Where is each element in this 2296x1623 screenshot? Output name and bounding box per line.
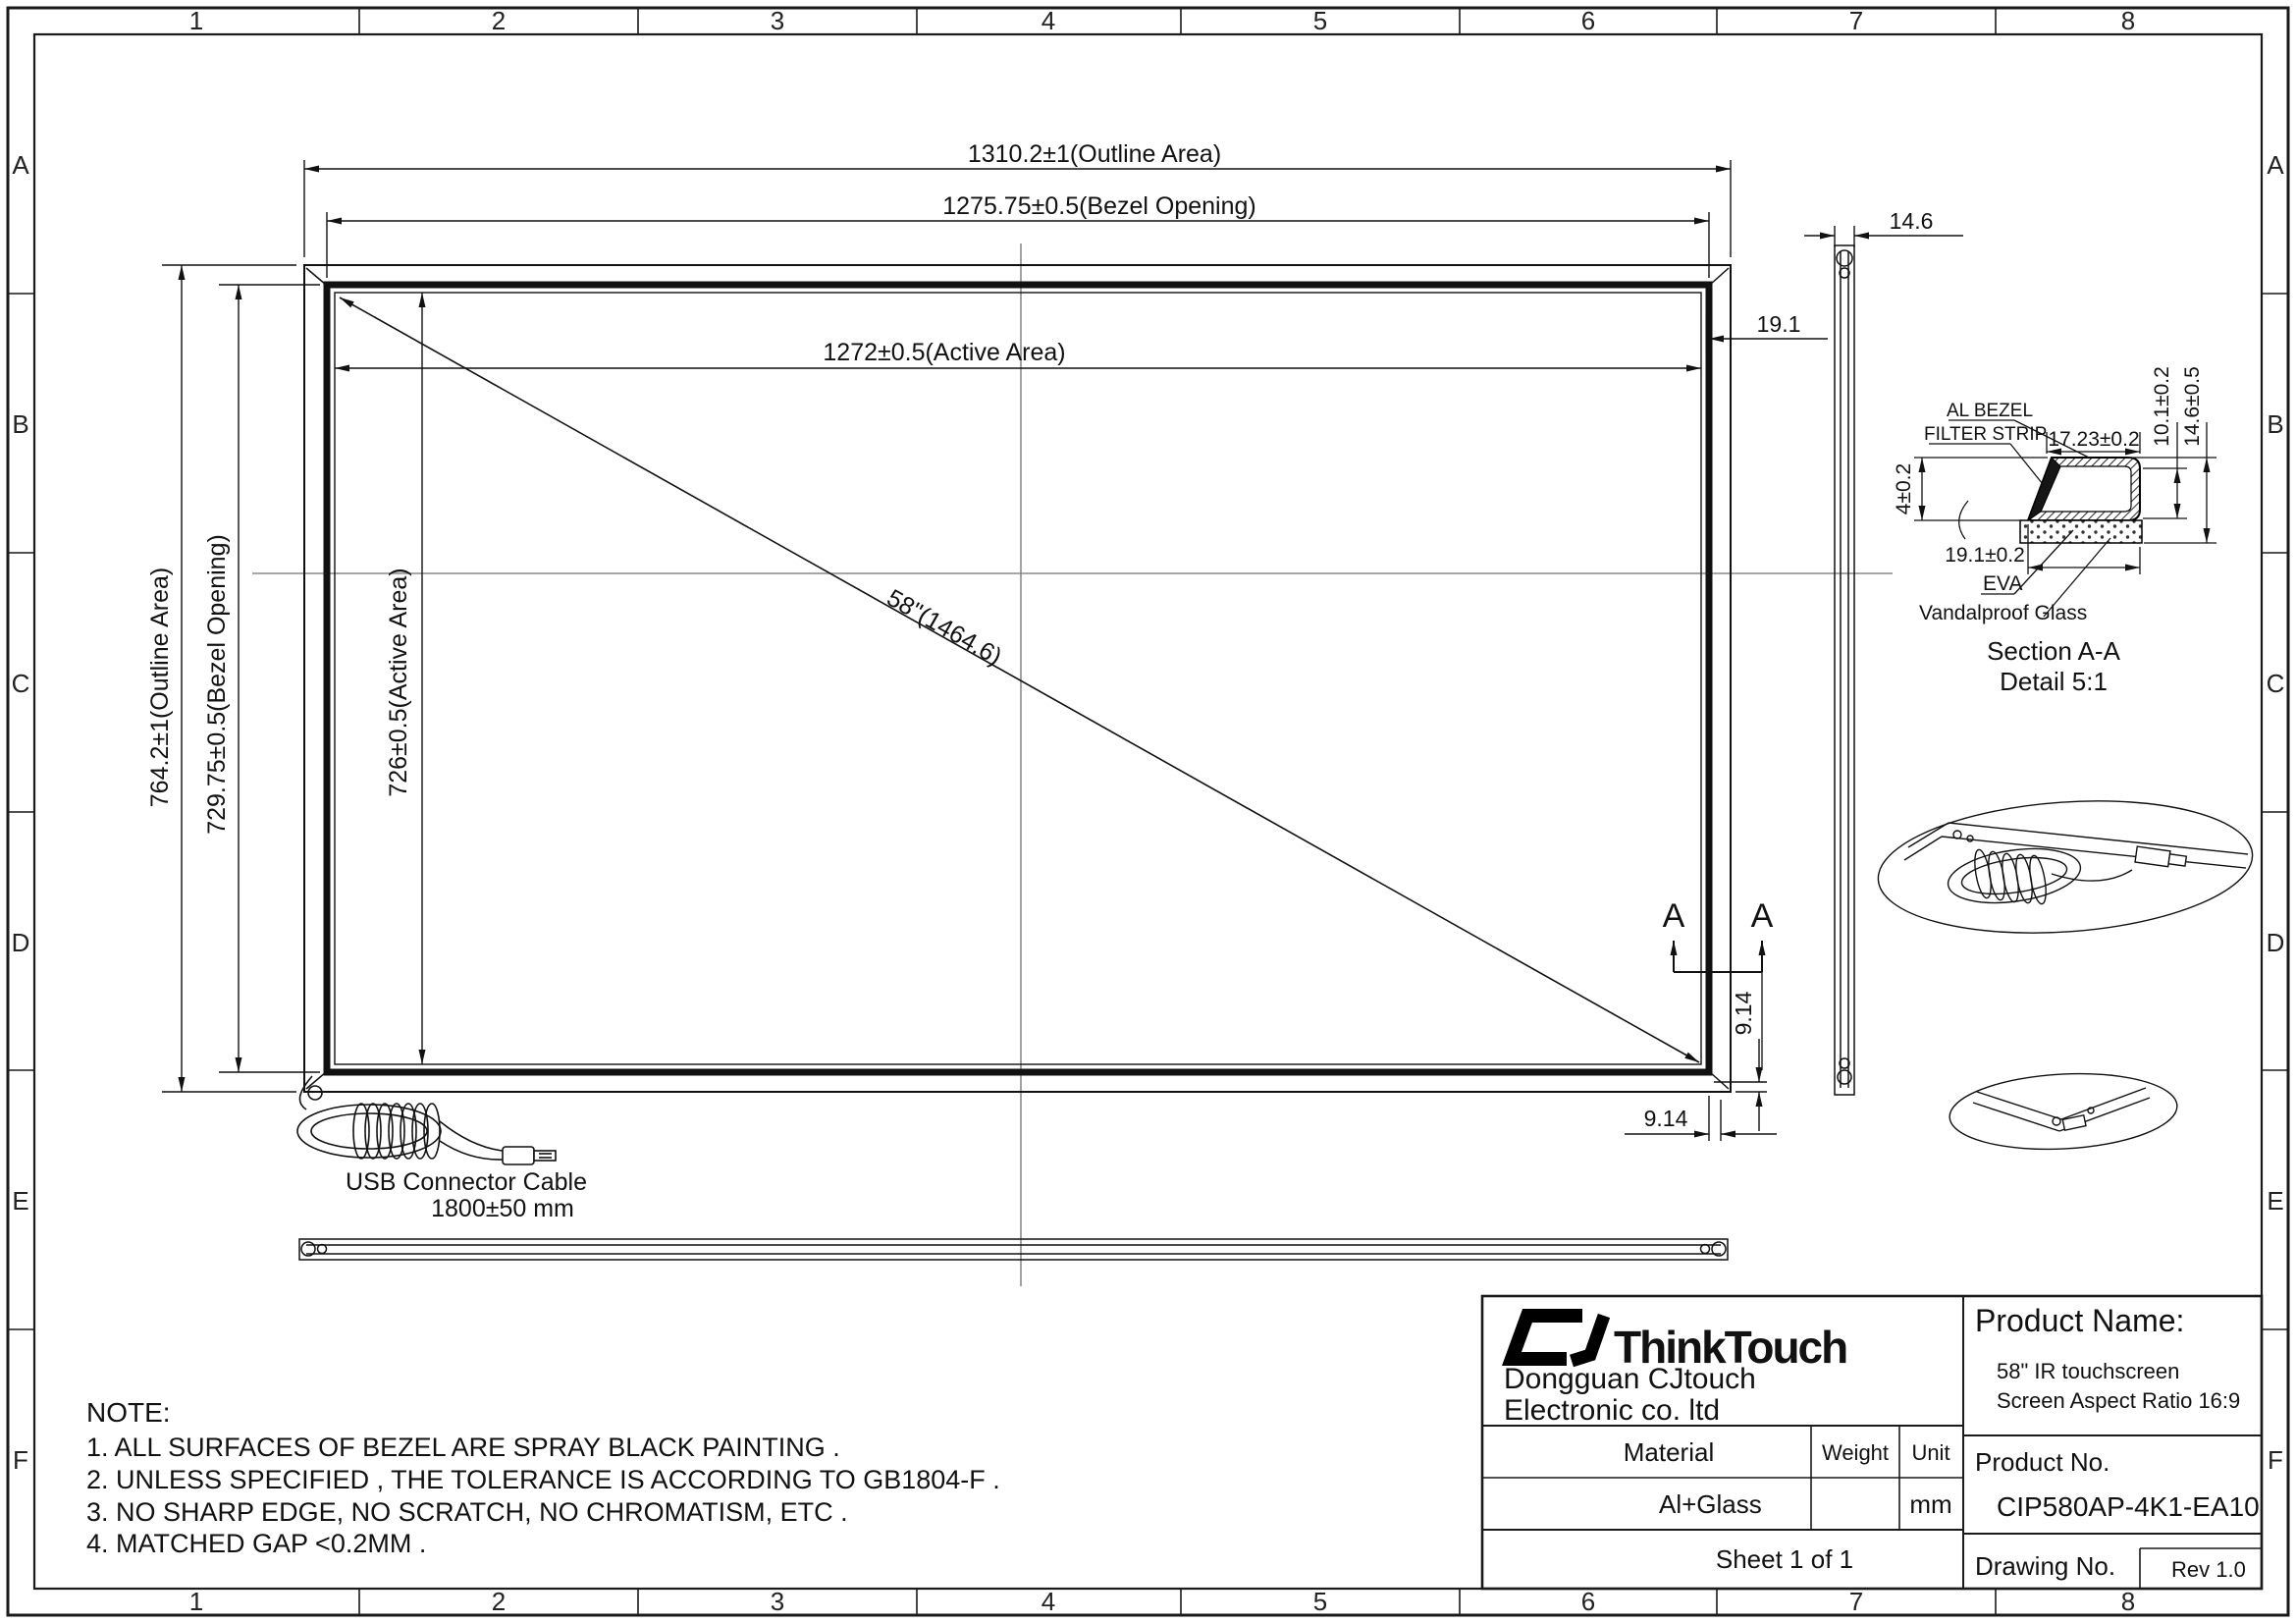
grid-row-c-right: C: [2267, 669, 2285, 698]
dim-corner-vertical: [1714, 1039, 1767, 1131]
grid-col-6-top: 6: [1581, 6, 1595, 35]
grid-row-f-right: F: [2268, 1445, 2283, 1475]
drawing-canvas: 1 2 3 4 5 6 7 8 1 2 3 4 5 6 7 8 A B C D …: [0, 0, 2296, 1623]
dim-corner-vertical-label: 9.14: [1731, 991, 1756, 1035]
notes-title: NOTE:: [86, 1397, 171, 1428]
drawing-no-label: Drawing No.: [1975, 1551, 2115, 1581]
cj-logo-icon: [1512, 1316, 1604, 1361]
grid-column-labels-top: 1 2 3 4 5 6 7 8: [189, 6, 2135, 35]
section-marker-a-left: A: [1663, 897, 1685, 935]
grid-col-8-top: 8: [2121, 6, 2135, 35]
note-item-3: 3. NO SHARP EDGE, NO SCRATCH, NO CHROMAT…: [86, 1497, 848, 1527]
product-no-value: CIP580AP-4K1-EA10: [1997, 1491, 2260, 1522]
dim-thickness: [1804, 226, 1963, 247]
note-item-2: 2. UNLESS SPECIFIED , THE TOLERANCE IS A…: [86, 1465, 1000, 1494]
bottom-profile-view: [299, 1239, 1728, 1260]
sheet-border: [8, 8, 2288, 1615]
grid-col-7-bottom: 7: [1849, 1587, 1863, 1616]
eva-label: EVA: [1983, 572, 2022, 595]
dim-active-height-label: 726±0.5(Active Area): [385, 568, 412, 796]
diagonal-dimension-label: 58"(1464.6): [882, 584, 1007, 671]
rev-label: Rev 1.0: [2171, 1557, 2246, 1582]
grid-col-5-top: 5: [1313, 6, 1327, 35]
grid-col-3-top: 3: [771, 6, 784, 35]
dim-thickness-label: 14.6: [1890, 208, 1934, 234]
grid-col-1-bottom: 1: [189, 1587, 203, 1616]
grid-row-a-right: A: [2267, 150, 2284, 180]
note-item-1: 1. ALL SURFACES OF BEZEL ARE SPRAY BLACK…: [86, 1433, 840, 1462]
section-marker-a-right: A: [1751, 897, 1774, 935]
grid-row-a-left: A: [12, 150, 29, 180]
sheet-number-label: Sheet 1 of 1: [1716, 1544, 1853, 1574]
company-line1: Dongguan CJtouch: [1504, 1363, 1756, 1395]
section-title: Section A-A: [1987, 636, 2121, 666]
dim-corner-horizontal-label: 9.14: [1644, 1106, 1688, 1131]
side-profile-view: [1835, 245, 1854, 1095]
usb-cable-label: USB Connector Cable: [346, 1168, 587, 1196]
product-name-line1: 58" IR touchscreen: [1997, 1359, 2179, 1383]
grid-row-f-left: F: [13, 1445, 28, 1475]
grid-col-5-bottom: 5: [1313, 1587, 1327, 1616]
material-value: Al+Glass: [1659, 1489, 1762, 1519]
note-item-4: 4. MATCHED GAP <0.2MM .: [86, 1529, 426, 1558]
dim-left-height-label: 4±0.2: [1893, 463, 1915, 514]
grid-col-2-top: 2: [492, 6, 506, 35]
section-subtitle: Detail 5:1: [2000, 667, 2108, 696]
notes-block: NOTE: 1. ALL SURFACES OF BEZEL ARE SPRAY…: [86, 1397, 1000, 1558]
dim-outline-width-label: 1310.2±1(Outline Area): [968, 140, 1221, 168]
unit-label: Unit: [1911, 1440, 1949, 1465]
grid-column-labels-bottom: 1 2 3 4 5 6 7 8: [189, 1587, 2135, 1616]
dim-bezel-opening-width-label: 1275.75±0.5(Bezel Opening): [942, 192, 1256, 220]
grid-col-4-bottom: 4: [1041, 1587, 1055, 1616]
material-label: Material: [1624, 1437, 1714, 1467]
grid-row-c-left: C: [12, 669, 30, 698]
product-name-line2: Screen Aspect Ratio 16:9: [1997, 1388, 2240, 1413]
dim-bezel-opening-height-label: 729.75±0.5(Bezel Opening): [203, 534, 231, 835]
grid-col-8-bottom: 8: [2121, 1587, 2135, 1616]
dim-active-width-label: 1272±0.5(Active Area): [823, 339, 1065, 366]
grid-col-6-bottom: 6: [1581, 1587, 1595, 1616]
usb-plug-icon: [503, 1147, 556, 1164]
drawing-sheet: 1 2 3 4 5 6 7 8 1 2 3 4 5 6 7 8 A B C D …: [0, 0, 2296, 1623]
dim-outline-height-label: 764.2±1(Outline Area): [146, 568, 174, 807]
grid-col-7-top: 7: [1849, 6, 1863, 35]
company-line2: Electronic co. ltd: [1504, 1394, 1720, 1427]
grid-row-d-left: D: [12, 928, 30, 957]
grid-col-1-top: 1: [189, 6, 203, 35]
touchscreen-front-view: [304, 265, 1731, 1092]
dim-top-width-label: 17.23±0.2: [2048, 428, 2139, 451]
filter-strip-label: FILTER STRIP: [1924, 424, 2047, 445]
product-no-label: Product No.: [1975, 1447, 2109, 1477]
corner-detail-bubble: [1948, 1068, 2179, 1155]
dim-bezel-width-right-label: 19.1: [1757, 311, 1801, 337]
vandalproof-glass-label: Vandalproof Glass: [1919, 602, 2087, 624]
usb-cable-length-label: 1800±50 mm: [431, 1195, 574, 1222]
usb-cable-drawing: [297, 1076, 503, 1160]
grid-col-3-bottom: 3: [771, 1587, 784, 1616]
al-bezel-label: AL BEZEL: [1947, 401, 2033, 421]
grid-row-b-left: B: [12, 409, 28, 439]
grid-row-b-right: B: [2267, 409, 2283, 439]
unit-value: mm: [1909, 1489, 1951, 1519]
corner-cable-detail-bubble: [1874, 789, 2257, 945]
dim-right-inner-label: 10.1±0.2: [2151, 366, 2173, 447]
grid-row-e-left: E: [12, 1186, 28, 1216]
grid-row-d-right: D: [2267, 928, 2285, 957]
grid-col-4-top: 4: [1041, 6, 1055, 35]
dim-bezel-opening-width: [327, 212, 1709, 278]
grid-row-e-right: E: [2267, 1186, 2283, 1216]
dim-right-outer-label: 14.6±0.5: [2181, 366, 2204, 447]
product-name-label: Product Name:: [1975, 1303, 2184, 1338]
section-detail-drawing: [2020, 458, 2142, 543]
grid-col-2-bottom: 2: [492, 1587, 506, 1616]
dim-bottom-width-label: 19.1±0.2: [1945, 544, 2025, 567]
weight-label: Weight: [1822, 1440, 1889, 1465]
